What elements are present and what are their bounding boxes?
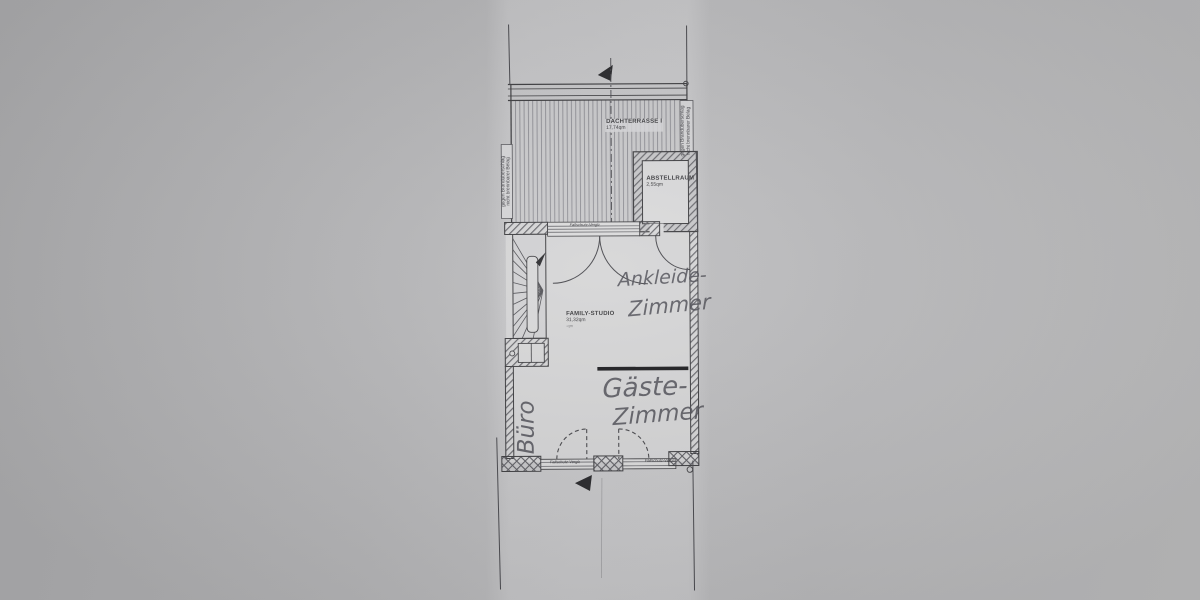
glazing-label-bottom-left: Fallschutz-Verglasung [550,460,580,465]
terrace-railing [508,84,687,101]
storage-label: ABSTELLRAUM 2,55qm [646,176,694,189]
glazing-label-top-text: Fallschutz-Verglasung [570,223,600,228]
terrace-area: 17,74qm [606,126,662,132]
fire-note-left-line2: nicht brennbarer Belag [506,157,512,205]
fire-note-left: gegen Brandüberschlag nicht brennbarer B… [500,144,512,218]
family-studio-note: -qm [566,324,614,329]
glazing-label-bl-text: Fallschutz-Verglasung [550,460,580,465]
plan-linework [0,0,1200,600]
staircase [513,234,547,338]
fire-note-right-line2: nicht brennbarer Belag [686,107,692,155]
glazing-label-top: Fallschutz-Verglasung [570,223,600,228]
storage-area: 2,55qm [646,182,694,188]
buero-handwriting: Büro [511,387,541,467]
glazing-label-bottom-right: Fallschutz-Verglasung [645,459,675,464]
terrace-label: DACHTERRASSE I 17,74qm [605,119,663,132]
fire-note-right: gegen Brandüberschlag nicht brennbarer B… [679,100,692,162]
storage-room [633,151,697,232]
scan-photo: DACHTERRASSE I 17,74qm ABSTELLRAUM 2,55q… [0,0,1200,600]
family-studio-label: FAMILY-STUDIO 31,32qm -qm [566,311,614,328]
floor-plan: DACHTERRASSE I 17,74qm ABSTELLRAUM 2,55q… [0,0,1200,600]
glazing-label-br-text: Fallschutz-Verglasung [645,459,675,464]
reference-circle-bottom [687,467,693,473]
buero-text: Büro [513,400,540,454]
section-arrow-bottom [575,475,592,491]
partition-line [597,367,688,371]
stair-closet [505,338,548,366]
